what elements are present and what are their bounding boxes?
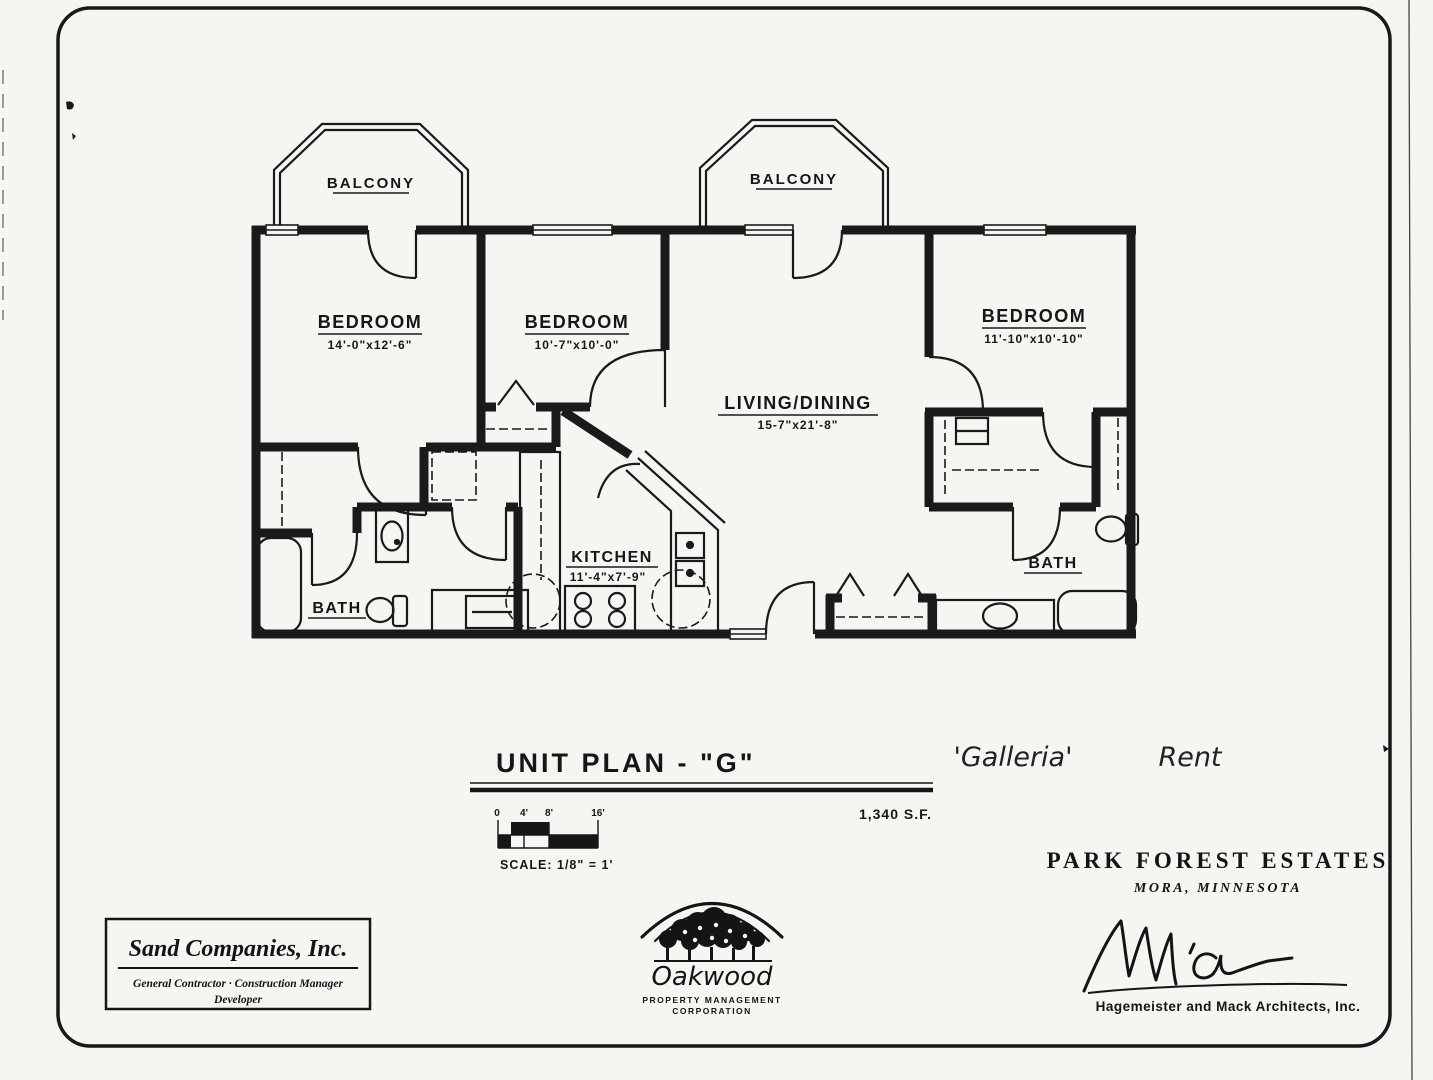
contractor-box: Sand Companies, Inc. General Contractor … [106, 919, 370, 1009]
walls [252, 226, 1136, 638]
trees-icon [659, 907, 765, 961]
management-line1: PROPERTY MANAGEMENT [642, 995, 781, 1005]
scale-tick-0: 0 [494, 808, 500, 819]
living-dining-label: LIVING/DINING [724, 393, 872, 413]
bath1-fixtures [257, 508, 528, 632]
scan-edge-line [1409, 0, 1412, 1080]
toilet [367, 598, 394, 622]
bedroom-1-dims: 14'-0"x12'-6" [328, 338, 413, 352]
project-block: PARK FOREST ESTATES MORA, MINNESOTA Hage… [1047, 848, 1390, 1014]
scale-tick-4: 4' [520, 808, 528, 819]
bedroom-2-dims: 10'-7"x10'-0" [535, 338, 620, 352]
scan-specks [66, 101, 1389, 752]
balcony-1-label: BALCONY [327, 175, 415, 192]
contractor-name: Sand Companies, Inc. [129, 936, 348, 962]
bathtub [1058, 591, 1136, 634]
architect-signature [1084, 921, 1347, 993]
unit-area: 1,340 S.F. [859, 806, 932, 822]
toilet [1096, 517, 1126, 542]
balcony-2-label: BALCONY [750, 171, 838, 188]
scale-tick-8: 8' [545, 808, 553, 819]
project-location: MORA, MINNESOTA [1133, 881, 1302, 896]
handwritten-unit-name: 'Galleria' [953, 742, 1072, 773]
kitchen-counters [520, 451, 725, 632]
contractor-roles: General Contractor · Construction Manage… [133, 978, 343, 990]
sheet-title: UNIT PLAN - "G" [496, 748, 756, 778]
bedroom-3-label: BEDROOM [982, 306, 1087, 326]
management-line2: CORPORATION [672, 1006, 752, 1016]
bath-2-label: BATH [1028, 555, 1077, 572]
handwritten-note: Rent [1158, 742, 1222, 773]
kitchen-dims: 11'-4"x7'-9" [570, 570, 646, 584]
living-dining-dims: 15-7"x21'-8" [758, 418, 839, 432]
management-logo: Oakwood PROPERTY MANAGEMENT CORPORATION [642, 904, 782, 1017]
bedroom-3-dims: 11'-10"x10'-10" [984, 332, 1083, 346]
bedroom-2-label: BEDROOM [525, 312, 630, 332]
project-name: PARK FOREST ESTATES [1047, 848, 1390, 873]
stove [565, 586, 635, 632]
kitchen-label: KITCHEN [571, 549, 653, 566]
bath2-fixtures [936, 418, 1138, 634]
architect-name: Hagemeister and Mack Architects, Inc. [1096, 999, 1361, 1014]
room-labels: BALCONY BALCONY BEDROOM 14'-0"x12'-6" BE… [308, 171, 1086, 618]
contractor-role-2: Developer [213, 994, 262, 1006]
scale-bar: 0 4' 8' 16' SCALE: 1/8" = 1' [494, 808, 613, 872]
bathtub [257, 538, 301, 632]
bedroom-1-label: BEDROOM [318, 312, 423, 332]
bath-1-label: BATH [312, 600, 361, 617]
scanned-floor-plan-page: BALCONY BALCONY BEDROOM 14'-0"x12'-6" BE… [0, 0, 1433, 1080]
scale-note: SCALE: 1/8" = 1' [500, 858, 613, 872]
management-name: Oakwood [651, 962, 773, 992]
scale-tick-16: 16' [591, 808, 605, 819]
floor-plan-drawing: BALCONY BALCONY BEDROOM 14'-0"x12'-6" BE… [0, 0, 1433, 1080]
